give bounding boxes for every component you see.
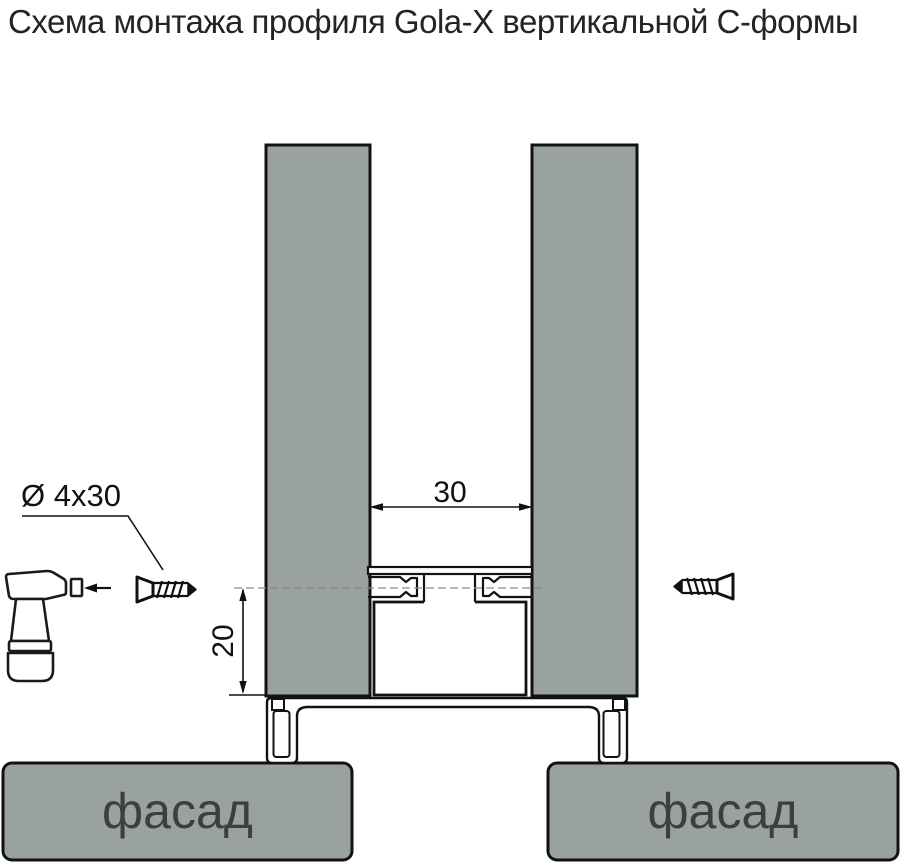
profile-body (374, 602, 526, 695)
profile-bottom-flange (267, 698, 627, 763)
arrowhead-top (239, 588, 246, 601)
screw-callout-leader (22, 516, 163, 570)
profile-top-plate (368, 567, 532, 574)
profile-leg-channel-left (274, 711, 290, 757)
diagram-canvas (0, 0, 900, 865)
screw-tip (188, 583, 196, 596)
screw-head (717, 574, 733, 599)
dimension-label-overlap-height: 20 (207, 615, 239, 667)
facade-label-right: фасад (548, 782, 898, 840)
drill-body (6, 571, 66, 599)
drill-chuck (71, 579, 82, 596)
profile-top-section (368, 567, 532, 695)
arrowhead-left (370, 503, 384, 511)
profile-flange-outline (267, 698, 627, 763)
facade-label-left: фасад (3, 782, 352, 840)
profile-clip-pocket-right (483, 577, 532, 597)
profile-leg-channel-right (604, 711, 620, 757)
drill-battery (8, 653, 53, 681)
mounting-scheme-diagram: Схема монтажа профиля Gola-X вертикально… (0, 0, 900, 865)
side-panel-right (532, 145, 637, 696)
screw-left-icon (137, 577, 196, 602)
diagram-title: Схема монтажа профиля Gola-X вертикально… (8, 3, 858, 41)
dimension-label-gap-width: 30 (415, 476, 485, 510)
arrowhead-right (519, 503, 533, 511)
profile-leg-notch-right (613, 699, 625, 710)
profile-clip-pocket-left (368, 577, 417, 597)
screw-tip (674, 580, 682, 593)
drill-handle (11, 599, 49, 641)
side-panel-left (266, 145, 370, 696)
drill-bit-arrow (84, 584, 97, 593)
screw-spec-label: Ø 4x30 (21, 478, 121, 514)
arrowhead-bottom (239, 681, 246, 694)
screw-right-icon (674, 574, 733, 599)
drill-battery-latch (9, 641, 51, 651)
screw-head (137, 577, 153, 602)
profile-leg-notch-left (272, 699, 284, 710)
drill-icon (6, 571, 111, 681)
